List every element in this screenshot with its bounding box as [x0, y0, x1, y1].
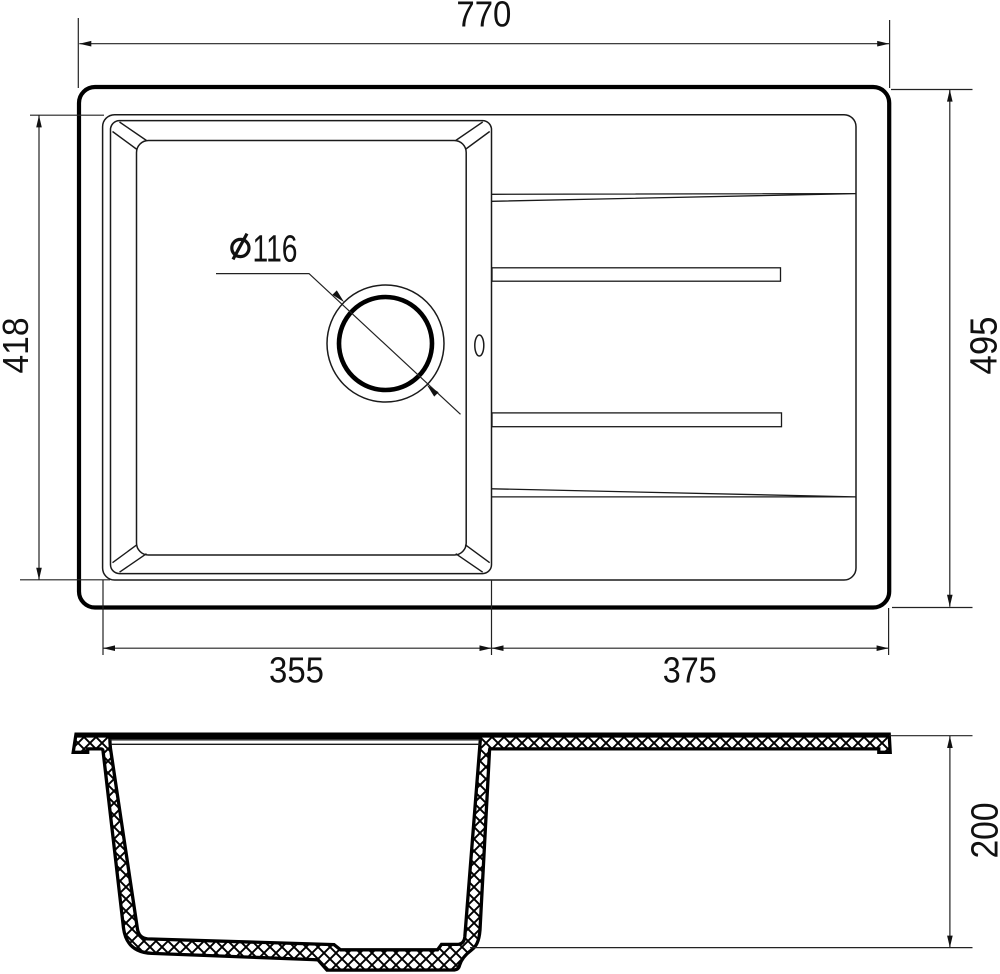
svg-text:355: 355 — [269, 649, 324, 690]
svg-text:418: 418 — [0, 318, 36, 374]
svg-text:200: 200 — [965, 803, 1000, 859]
svg-text:116: 116 — [253, 229, 298, 271]
svg-text:770: 770 — [456, 0, 511, 34]
svg-text:495: 495 — [964, 317, 1000, 375]
svg-text:375: 375 — [663, 649, 717, 690]
